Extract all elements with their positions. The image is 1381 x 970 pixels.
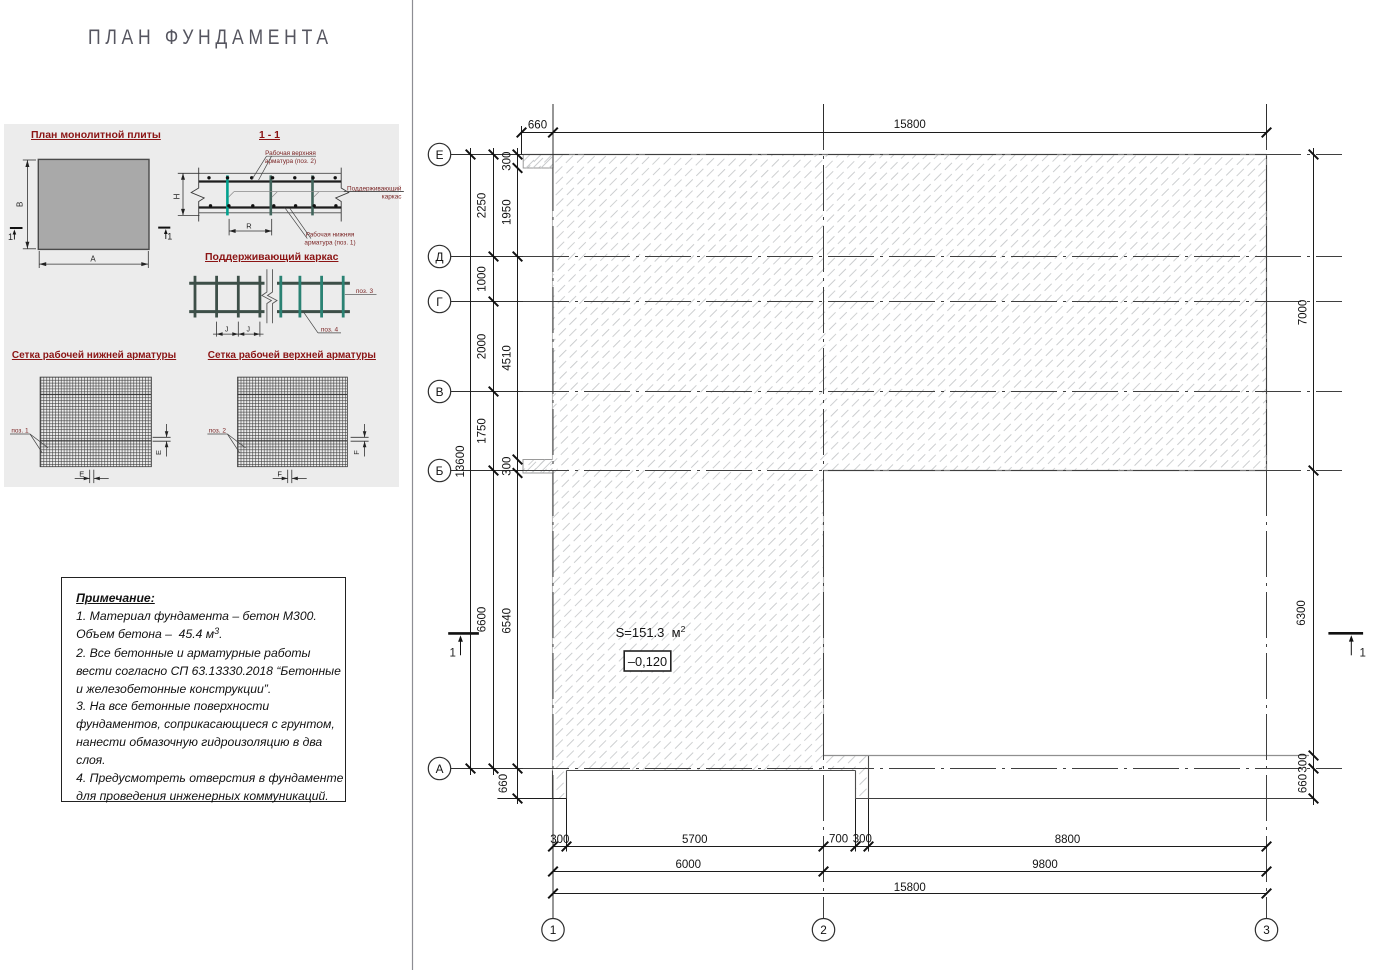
svg-text:Б: Б (436, 464, 444, 478)
svg-text:300: 300 (502, 152, 514, 171)
svg-text:300: 300 (550, 834, 569, 846)
svg-text:6540: 6540 (502, 608, 514, 634)
svg-text:2: 2 (820, 923, 827, 937)
svg-text:3: 3 (1263, 923, 1270, 937)
svg-text:Е: Е (436, 148, 444, 162)
svg-text:660: 660 (528, 119, 547, 131)
svg-text:S=151.3 м2: S=151.3 м2 (616, 624, 686, 640)
svg-text:1: 1 (450, 648, 456, 660)
svg-text:7000: 7000 (1298, 300, 1310, 326)
svg-text:6000: 6000 (676, 859, 702, 871)
svg-text:300: 300 (1298, 753, 1310, 772)
svg-text:1750: 1750 (477, 418, 489, 444)
svg-text:1950: 1950 (502, 199, 514, 225)
svg-text:8800: 8800 (1055, 834, 1081, 846)
svg-text:1: 1 (1360, 648, 1366, 660)
svg-text:6600: 6600 (477, 607, 489, 633)
svg-text:2250: 2250 (477, 193, 489, 219)
svg-text:700: 700 (829, 834, 848, 846)
svg-text:2000: 2000 (477, 334, 489, 360)
svg-text:300: 300 (502, 457, 514, 476)
svg-text:5700: 5700 (682, 834, 708, 846)
svg-text:Д: Д (436, 250, 444, 264)
svg-text:13600: 13600 (455, 446, 467, 478)
svg-text:А: А (436, 762, 444, 776)
svg-text:6300: 6300 (1296, 600, 1308, 626)
svg-text:300: 300 (853, 834, 872, 846)
svg-text:660: 660 (1298, 774, 1310, 793)
svg-text:В: В (436, 385, 444, 399)
svg-text:Г: Г (436, 295, 443, 309)
svg-text:660: 660 (498, 774, 510, 793)
svg-text:4510: 4510 (502, 345, 514, 371)
svg-text:–0,120: –0,120 (628, 654, 667, 669)
svg-text:1000: 1000 (477, 266, 489, 292)
svg-text:15800: 15800 (894, 119, 926, 131)
svg-text:15800: 15800 (894, 882, 926, 894)
svg-text:1: 1 (550, 923, 557, 937)
svg-text:9800: 9800 (1032, 859, 1058, 871)
